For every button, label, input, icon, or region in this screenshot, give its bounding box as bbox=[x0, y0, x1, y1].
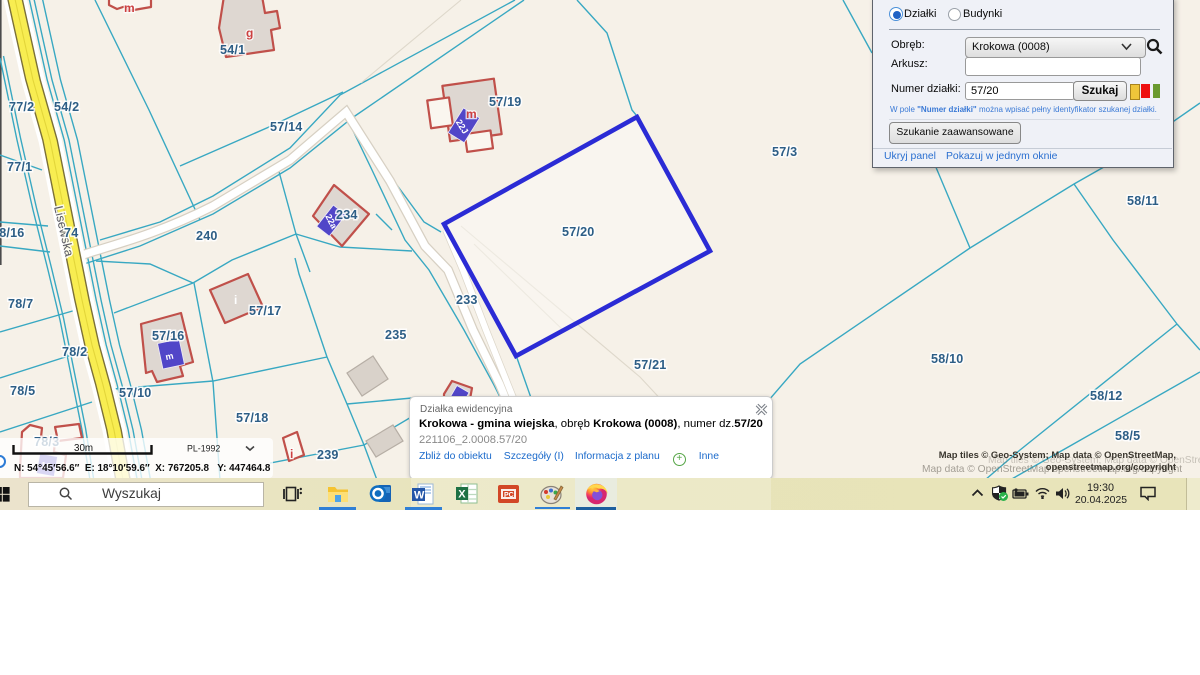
svg-text:W: W bbox=[414, 490, 425, 502]
svg-text:57/10: 57/10 bbox=[119, 386, 152, 400]
svg-text:235: 235 bbox=[385, 328, 407, 342]
svg-text:78/2: 78/2 bbox=[62, 345, 87, 359]
svg-text:30m: 30m bbox=[74, 443, 93, 454]
svg-text:78/16: 78/16 bbox=[0, 226, 25, 240]
svg-text:PL-1992: PL-1992 bbox=[187, 444, 220, 454]
svg-text:54/1: 54/1 bbox=[220, 43, 245, 57]
svg-text:77/2: 77/2 bbox=[9, 100, 34, 114]
svg-text:m: m bbox=[124, 1, 135, 15]
svg-text:X: X bbox=[458, 489, 466, 501]
svg-text:233: 233 bbox=[456, 293, 478, 307]
svg-text:57/19: 57/19 bbox=[489, 95, 522, 109]
svg-text:78/5: 78/5 bbox=[10, 384, 35, 398]
svg-text:57/18: 57/18 bbox=[236, 411, 269, 425]
svg-text:57/20: 57/20 bbox=[562, 225, 595, 239]
svg-text:57/3: 57/3 bbox=[772, 145, 797, 159]
svg-text:N: 54°45′56.6″ E: 18°10′59.6″: N: 54°45′56.6″ E: 18°10′59.6″ X: 767205.… bbox=[14, 463, 271, 474]
svg-text:g: g bbox=[246, 26, 253, 40]
svg-text:240: 240 bbox=[196, 229, 218, 243]
svg-text:78/7: 78/7 bbox=[8, 297, 33, 311]
svg-text:57/21: 57/21 bbox=[634, 358, 667, 372]
svg-text:57/14: 57/14 bbox=[270, 120, 303, 134]
svg-text:54/2: 54/2 bbox=[54, 100, 79, 114]
svg-text:57/17: 57/17 bbox=[249, 304, 282, 318]
svg-text:74: 74 bbox=[64, 226, 78, 240]
svg-text:58/10: 58/10 bbox=[931, 352, 964, 366]
svg-text:77/1: 77/1 bbox=[7, 160, 32, 174]
svg-text:i: i bbox=[234, 293, 237, 307]
svg-text:PC: PC bbox=[504, 492, 514, 499]
svg-text:m: m bbox=[466, 107, 477, 121]
svg-text:58/5: 58/5 bbox=[1115, 429, 1140, 443]
svg-text:57/16: 57/16 bbox=[152, 329, 185, 343]
svg-text:58/12: 58/12 bbox=[1090, 389, 1123, 403]
svg-text:58/11: 58/11 bbox=[1127, 194, 1159, 208]
svg-text:234: 234 bbox=[336, 208, 358, 222]
